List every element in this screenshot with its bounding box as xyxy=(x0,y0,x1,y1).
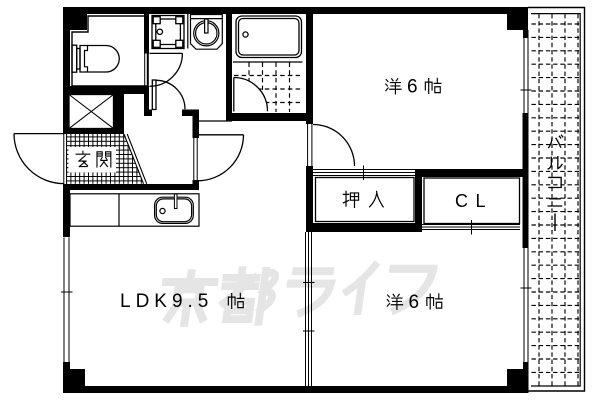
svg-text:CL: CL xyxy=(455,191,493,211)
svg-text:LDK9.5: LDK9.5 xyxy=(120,291,213,312)
svg-text:6: 6 xyxy=(407,77,418,98)
svg-text:6: 6 xyxy=(409,292,420,313)
